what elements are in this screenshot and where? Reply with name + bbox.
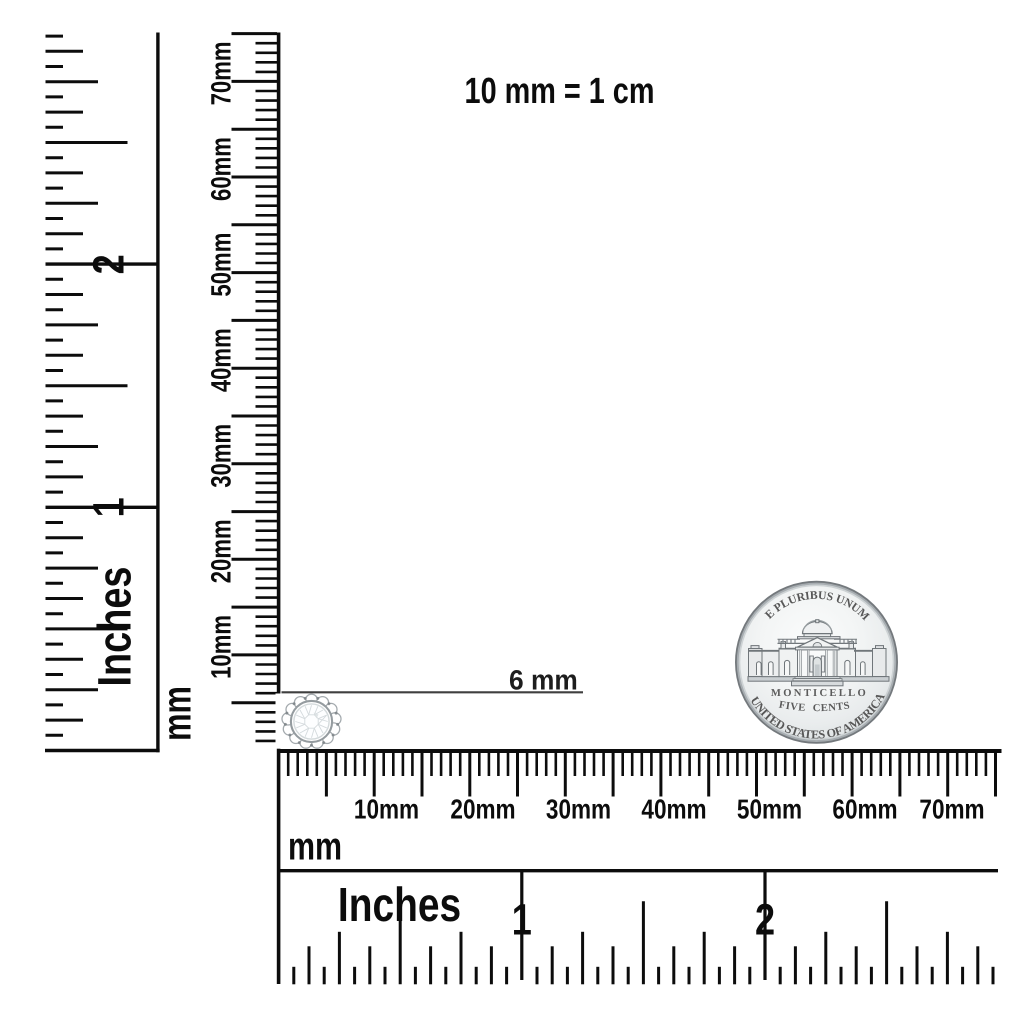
- svg-text:Inches: Inches: [338, 879, 461, 932]
- svg-text:MONTICELLO: MONTICELLO: [771, 688, 868, 699]
- svg-text:40mm: 40mm: [641, 794, 706, 825]
- svg-text:2: 2: [755, 896, 775, 945]
- svg-text:mm: mm: [156, 686, 200, 741]
- svg-text:1: 1: [512, 896, 532, 945]
- svg-text:60mm: 60mm: [832, 794, 897, 825]
- svg-text:10 mm = 1 cm: 10 mm = 1 cm: [465, 70, 655, 111]
- svg-text:10mm: 10mm: [354, 794, 419, 825]
- svg-text:50mm: 50mm: [206, 233, 237, 297]
- svg-text:60mm: 60mm: [206, 137, 237, 201]
- svg-text:20mm: 20mm: [450, 794, 515, 825]
- svg-text:30mm: 30mm: [206, 424, 237, 488]
- svg-text:mm: mm: [288, 826, 342, 869]
- svg-text:70mm: 70mm: [206, 41, 237, 105]
- svg-text:50mm: 50mm: [737, 794, 802, 825]
- svg-text:1: 1: [85, 497, 134, 517]
- svg-text:20mm: 20mm: [206, 519, 237, 583]
- svg-text:Inches: Inches: [88, 566, 141, 686]
- svg-text:40mm: 40mm: [206, 328, 237, 392]
- svg-text:30mm: 30mm: [546, 794, 611, 825]
- svg-text:70mm: 70mm: [919, 794, 984, 825]
- svg-text:10mm: 10mm: [206, 615, 237, 679]
- svg-text:6 mm: 6 mm: [509, 664, 578, 695]
- svg-text:2: 2: [85, 254, 134, 274]
